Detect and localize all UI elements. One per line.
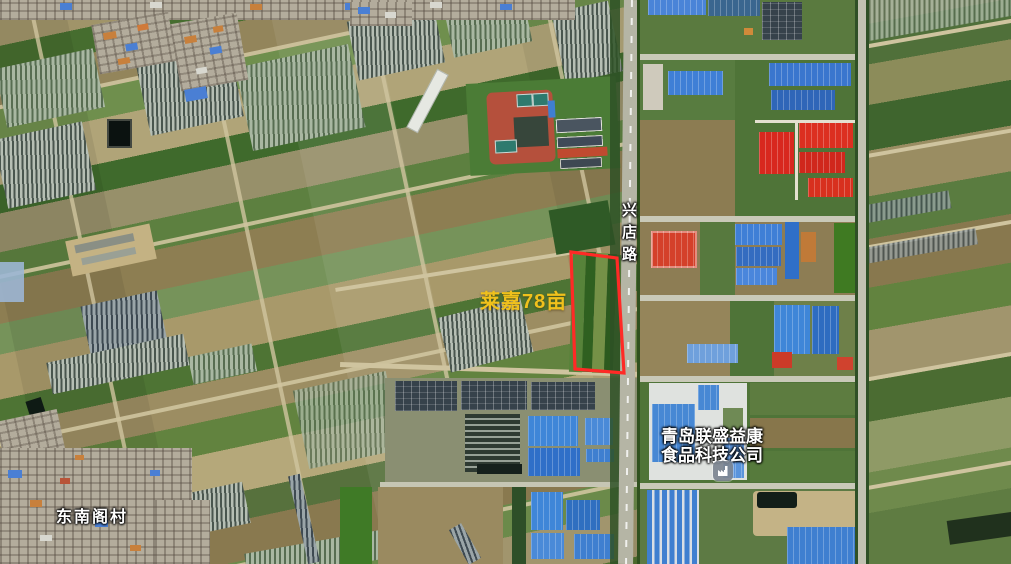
factory-building [687,344,738,363]
company-label: 青岛联盛益康 食品科技公司 [647,427,777,465]
greenhouse-cluster [856,228,978,270]
field-mosaic [856,0,1011,564]
village-area [350,2,412,26]
field-patch [340,487,372,564]
factory-building [735,224,782,245]
house-roof [8,470,22,478]
factory-building-red [772,352,792,368]
village-label: 东南阁村 [56,503,128,527]
sports-court [514,116,550,148]
house-roof [385,12,396,18]
company-label-line2: 食品科技公司 [647,446,777,465]
industrial-zone [640,0,1011,564]
house-roof [250,4,262,10]
satellite-map[interactable]: 莱嘉78亩 兴店路 青岛联盛益康 食品科技公司 东南阁村 [0,0,1011,564]
house-roof [60,478,70,484]
factory-building [787,527,863,564]
house-roof [75,455,84,460]
dirt-road [856,112,1011,173]
factory-building-red [808,178,853,197]
pond [477,464,522,474]
industrial-area [385,378,640,485]
house-roof [125,42,138,51]
plot-label: 莱嘉78亩 [480,285,567,314]
building [643,64,663,110]
house-roof [213,25,224,33]
factory-building [771,90,835,110]
farmland-zone [856,0,1011,564]
house-roof [103,31,117,40]
house-roof [30,500,42,507]
factory-building [566,500,600,530]
solar-panel-roof [531,382,595,410]
factory-building [736,268,777,285]
factory-building [668,71,723,95]
field-patch [700,222,735,296]
house-roof [184,35,197,44]
field-patch [378,487,503,564]
village-area [0,0,575,20]
sports-court [516,94,533,108]
tree-line [866,0,869,564]
road-centerline [625,0,632,564]
house-roof [430,2,442,8]
farmland-zone [0,0,640,564]
house-roof [60,3,72,10]
factory-building [762,2,802,40]
tree-line [512,487,526,564]
house-roof [40,535,52,541]
solar-panel-roof [395,381,457,411]
house-roof [130,545,141,551]
dirt-road [856,434,1011,495]
building [560,157,602,169]
factory-building [785,222,799,279]
greenhouse-cluster [856,190,951,234]
factory-building-red [799,123,853,148]
path [795,120,798,200]
pond [757,492,797,508]
factory-icon[interactable] [713,461,733,481]
factory-building [648,0,706,15]
road-label: 兴店路 [618,202,639,268]
factory-building [531,492,563,530]
greenhouse-cluster [0,262,24,302]
house-roof [500,4,512,10]
building [556,117,603,133]
house-roof [358,7,370,14]
solar-panel-roof [461,381,527,410]
factory-building [647,490,699,564]
factory-building [774,305,810,354]
field-patch [750,383,856,415]
factory-building-red [799,152,845,173]
factory-building-red [759,132,794,174]
factory-building [531,533,564,559]
factory-building [574,534,614,559]
house-roof [196,67,208,75]
factory-building [769,63,851,86]
school-campus [466,76,621,176]
factory-building [585,418,613,445]
company-label-line1: 青岛联盛益康 [647,427,777,446]
sports-court [532,93,549,107]
factory-building [698,385,719,410]
house-roof [137,23,149,31]
pond [107,119,132,148]
house-roof [209,46,222,55]
paved-road [858,0,866,564]
dirt-road [856,328,1011,389]
building [801,232,816,262]
factory-building-red [837,357,853,370]
village-area [170,13,249,92]
house-roof [118,57,131,65]
building [548,100,556,117]
factory-building [528,448,580,476]
house-roof [150,470,160,476]
sports-court [495,139,518,153]
factory-building-red [651,231,697,268]
field-patch [640,301,730,376]
factory-building [708,0,760,16]
village-area [155,500,210,564]
factory-icon-glyph [713,461,733,481]
greenhouse-cluster [856,0,1011,58]
factory-building [528,416,578,446]
building [744,28,753,35]
field-patch [730,301,774,376]
factory-building [736,247,781,266]
factory-building [812,306,839,354]
house-roof [150,2,162,8]
